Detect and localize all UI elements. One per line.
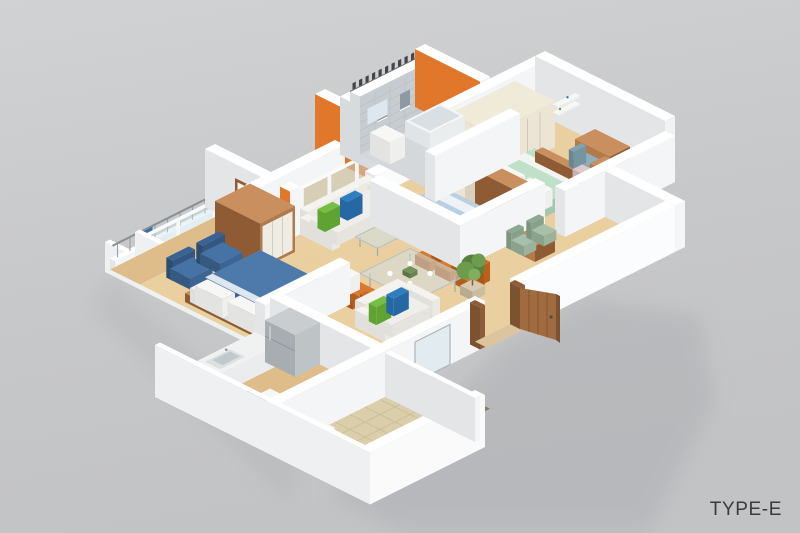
floorplan-render-page: TYPE-E xyxy=(0,0,800,533)
floorplan-3d-render xyxy=(0,0,800,533)
plan-type-caption: TYPE-E xyxy=(710,499,782,521)
